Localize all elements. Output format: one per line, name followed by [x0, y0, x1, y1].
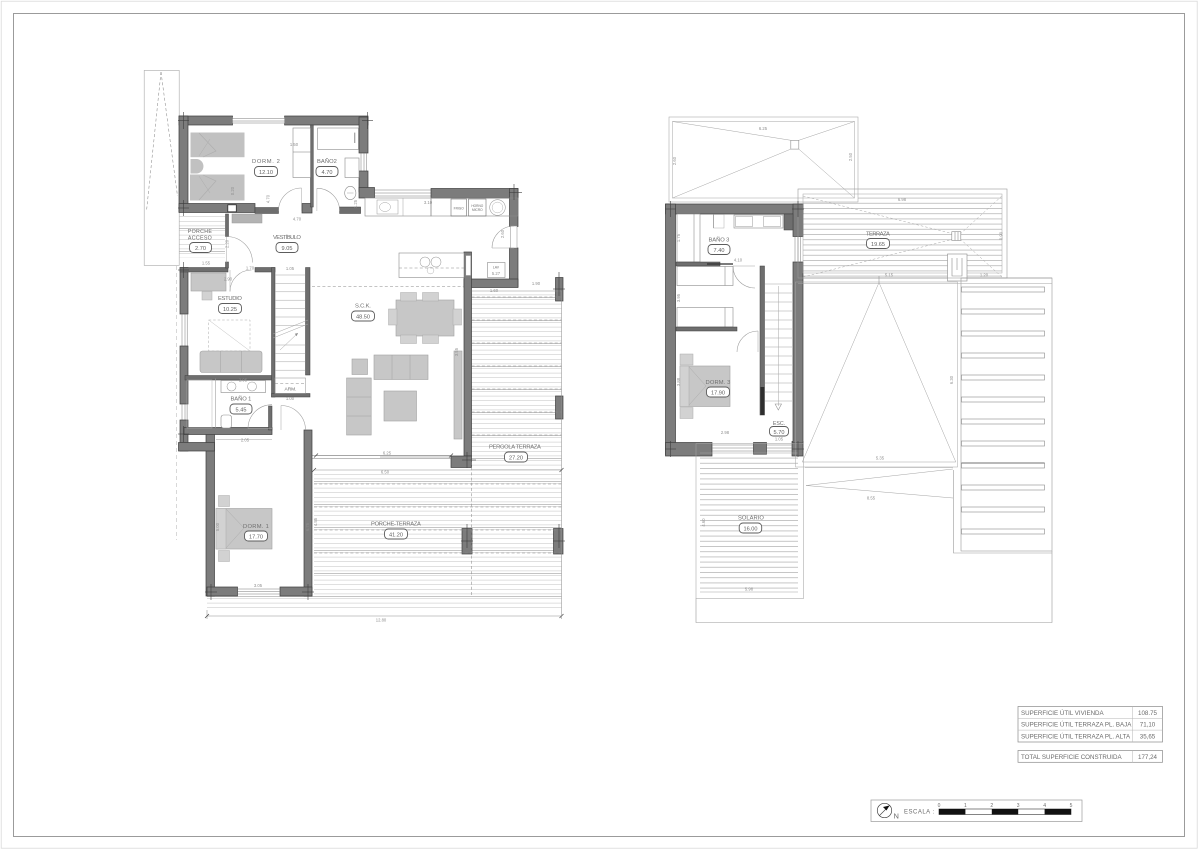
svg-text:PERGOLA TERRAZA: PERGOLA TERRAZA — [489, 445, 541, 451]
svg-text:108.75: 108.75 — [1138, 710, 1157, 717]
svg-text:6.25: 6.25 — [383, 451, 392, 456]
svg-text:19.65: 19.65 — [871, 242, 885, 248]
svg-text:DORM. 2: DORM. 2 — [252, 159, 280, 165]
svg-text:SUPERFICIE ÚTIL VIVIENDA: SUPERFICIE ÚTIL VIVIENDA — [1021, 710, 1105, 717]
svg-text:1.60: 1.60 — [490, 288, 499, 293]
svg-text:4.60: 4.60 — [701, 518, 706, 527]
svg-text:3.05: 3.05 — [254, 583, 263, 588]
svg-text:5.70: 5.70 — [774, 430, 785, 436]
svg-text:12.10: 12.10 — [259, 170, 273, 176]
svg-text:2.98: 2.98 — [721, 430, 730, 435]
svg-text:4.70: 4.70 — [266, 194, 271, 203]
svg-text:DORM. 3: DORM. 3 — [706, 380, 731, 386]
svg-text:SOLARIO: SOLARIO — [738, 516, 764, 522]
svg-text:2.50: 2.50 — [848, 152, 853, 161]
svg-text:PORCHE-TERRAZA: PORCHE-TERRAZA — [371, 522, 421, 528]
svg-text:TOTAL SUPERFICIE CONSTRUIDA: TOTAL SUPERFICIE CONSTRUIDA — [1021, 754, 1122, 761]
svg-text:17.90: 17.90 — [711, 391, 725, 397]
svg-text:27.20: 27.20 — [509, 456, 523, 462]
svg-text:2.05: 2.05 — [241, 438, 250, 443]
svg-text:0: 0 — [938, 803, 941, 809]
svg-text:3.10: 3.10 — [424, 200, 433, 205]
svg-text:5.98: 5.98 — [745, 587, 754, 592]
svg-text:S.C.K.: S.C.K. — [355, 304, 371, 310]
svg-text:6.30: 6.30 — [949, 375, 954, 384]
svg-text:2.70: 2.70 — [195, 246, 206, 252]
svg-text:SUPERFICIE ÚTIL TERRAZA PL. AL: SUPERFICIE ÚTIL TERRAZA PL. ALTA — [1021, 733, 1131, 740]
svg-text:4.70: 4.70 — [322, 170, 333, 176]
svg-text:3.95: 3.95 — [676, 293, 681, 302]
svg-text:1.05: 1.05 — [775, 437, 784, 442]
svg-text:LAV: LAV — [493, 266, 500, 270]
svg-text:3.55: 3.55 — [454, 347, 459, 356]
svg-text:7.40: 7.40 — [714, 248, 725, 254]
svg-text:3.88: 3.88 — [676, 377, 681, 386]
svg-text:VESTÍBULO: VESTÍBULO — [273, 234, 301, 241]
svg-text:BAÑO 1: BAÑO 1 — [231, 396, 252, 403]
svg-text:ARM.: ARM. — [285, 387, 297, 393]
svg-text:5.00: 5.00 — [215, 522, 220, 531]
svg-text:0.20: 0.20 — [230, 186, 235, 195]
svg-text:MICRO: MICRO — [472, 208, 483, 212]
svg-text:2.60: 2.60 — [500, 229, 505, 238]
svg-text:12.80: 12.80 — [376, 618, 387, 623]
svg-text:ESTUDIO: ESTUDIO — [218, 296, 242, 302]
svg-text:1.00: 1.00 — [286, 396, 295, 401]
svg-text:5.27: 5.27 — [492, 271, 501, 276]
svg-text:FRIGO: FRIGO — [454, 207, 465, 211]
svg-text:71,10: 71,10 — [1140, 722, 1156, 729]
svg-text:6.50: 6.50 — [381, 470, 390, 475]
svg-text:5.45: 5.45 — [236, 408, 247, 414]
svg-text:5.35: 5.35 — [876, 456, 885, 461]
svg-text:6.75: 6.75 — [305, 522, 310, 531]
svg-text:BAÑO2: BAÑO2 — [317, 158, 337, 165]
svg-text:5.15: 5.15 — [885, 273, 894, 278]
svg-text:17.70: 17.70 — [249, 535, 263, 541]
svg-text:1.50: 1.50 — [290, 142, 299, 147]
svg-text:PORCHE: PORCHE — [188, 229, 213, 235]
svg-text:1.70: 1.70 — [246, 266, 255, 271]
svg-text:41.20: 41.20 — [389, 533, 403, 539]
svg-text:2.60: 2.60 — [672, 156, 677, 165]
svg-text:8.55: 8.55 — [867, 496, 876, 501]
svg-text:177,24: 177,24 — [1138, 754, 1157, 761]
svg-text:1.55: 1.55 — [202, 261, 211, 266]
svg-text:0.90: 0.90 — [999, 231, 1004, 240]
svg-text:4.70: 4.70 — [293, 217, 302, 222]
svg-text:16.00: 16.00 — [744, 527, 758, 533]
svg-text:ESCALA :: ESCALA : — [904, 810, 935, 816]
svg-text:TERRAZA: TERRAZA — [866, 232, 890, 238]
svg-text:DORM. 1: DORM. 1 — [243, 524, 269, 530]
svg-text:35,65: 35,65 — [1140, 733, 1156, 740]
svg-text:2: 2 — [990, 803, 993, 809]
svg-text:2.90: 2.90 — [224, 277, 233, 282]
svg-text:6.98: 6.98 — [898, 197, 907, 202]
svg-text:10.25: 10.25 — [223, 307, 237, 313]
svg-text:2.95: 2.95 — [239, 378, 248, 383]
svg-text:BAÑO 3: BAÑO 3 — [709, 237, 730, 244]
svg-text:N: N — [894, 812, 899, 821]
svg-text:4.10: 4.10 — [734, 258, 743, 263]
svg-text:1.90: 1.90 — [532, 281, 541, 286]
svg-text:2.20: 2.20 — [225, 239, 230, 248]
svg-text:6.25: 6.25 — [759, 126, 768, 131]
svg-text:5: 5 — [1070, 803, 1073, 809]
svg-text:1.75: 1.75 — [676, 233, 681, 242]
svg-text:1.20: 1.20 — [980, 273, 989, 278]
svg-text:1.05: 1.05 — [286, 266, 295, 271]
svg-text:1: 1 — [964, 803, 967, 809]
svg-text:9.05: 9.05 — [282, 246, 293, 252]
svg-text:4: 4 — [1043, 803, 1046, 809]
svg-text:48.50: 48.50 — [356, 315, 370, 321]
svg-text:SUPERFICIE ÚTIL TERRAZA PL. BA: SUPERFICIE ÚTIL TERRAZA PL. BAJA — [1021, 722, 1132, 729]
svg-text:4.55: 4.55 — [313, 517, 318, 526]
svg-text:3: 3 — [1017, 803, 1020, 809]
svg-text:ACCESO: ACCESO — [188, 236, 212, 242]
svg-text:1.25: 1.25 — [353, 199, 358, 208]
